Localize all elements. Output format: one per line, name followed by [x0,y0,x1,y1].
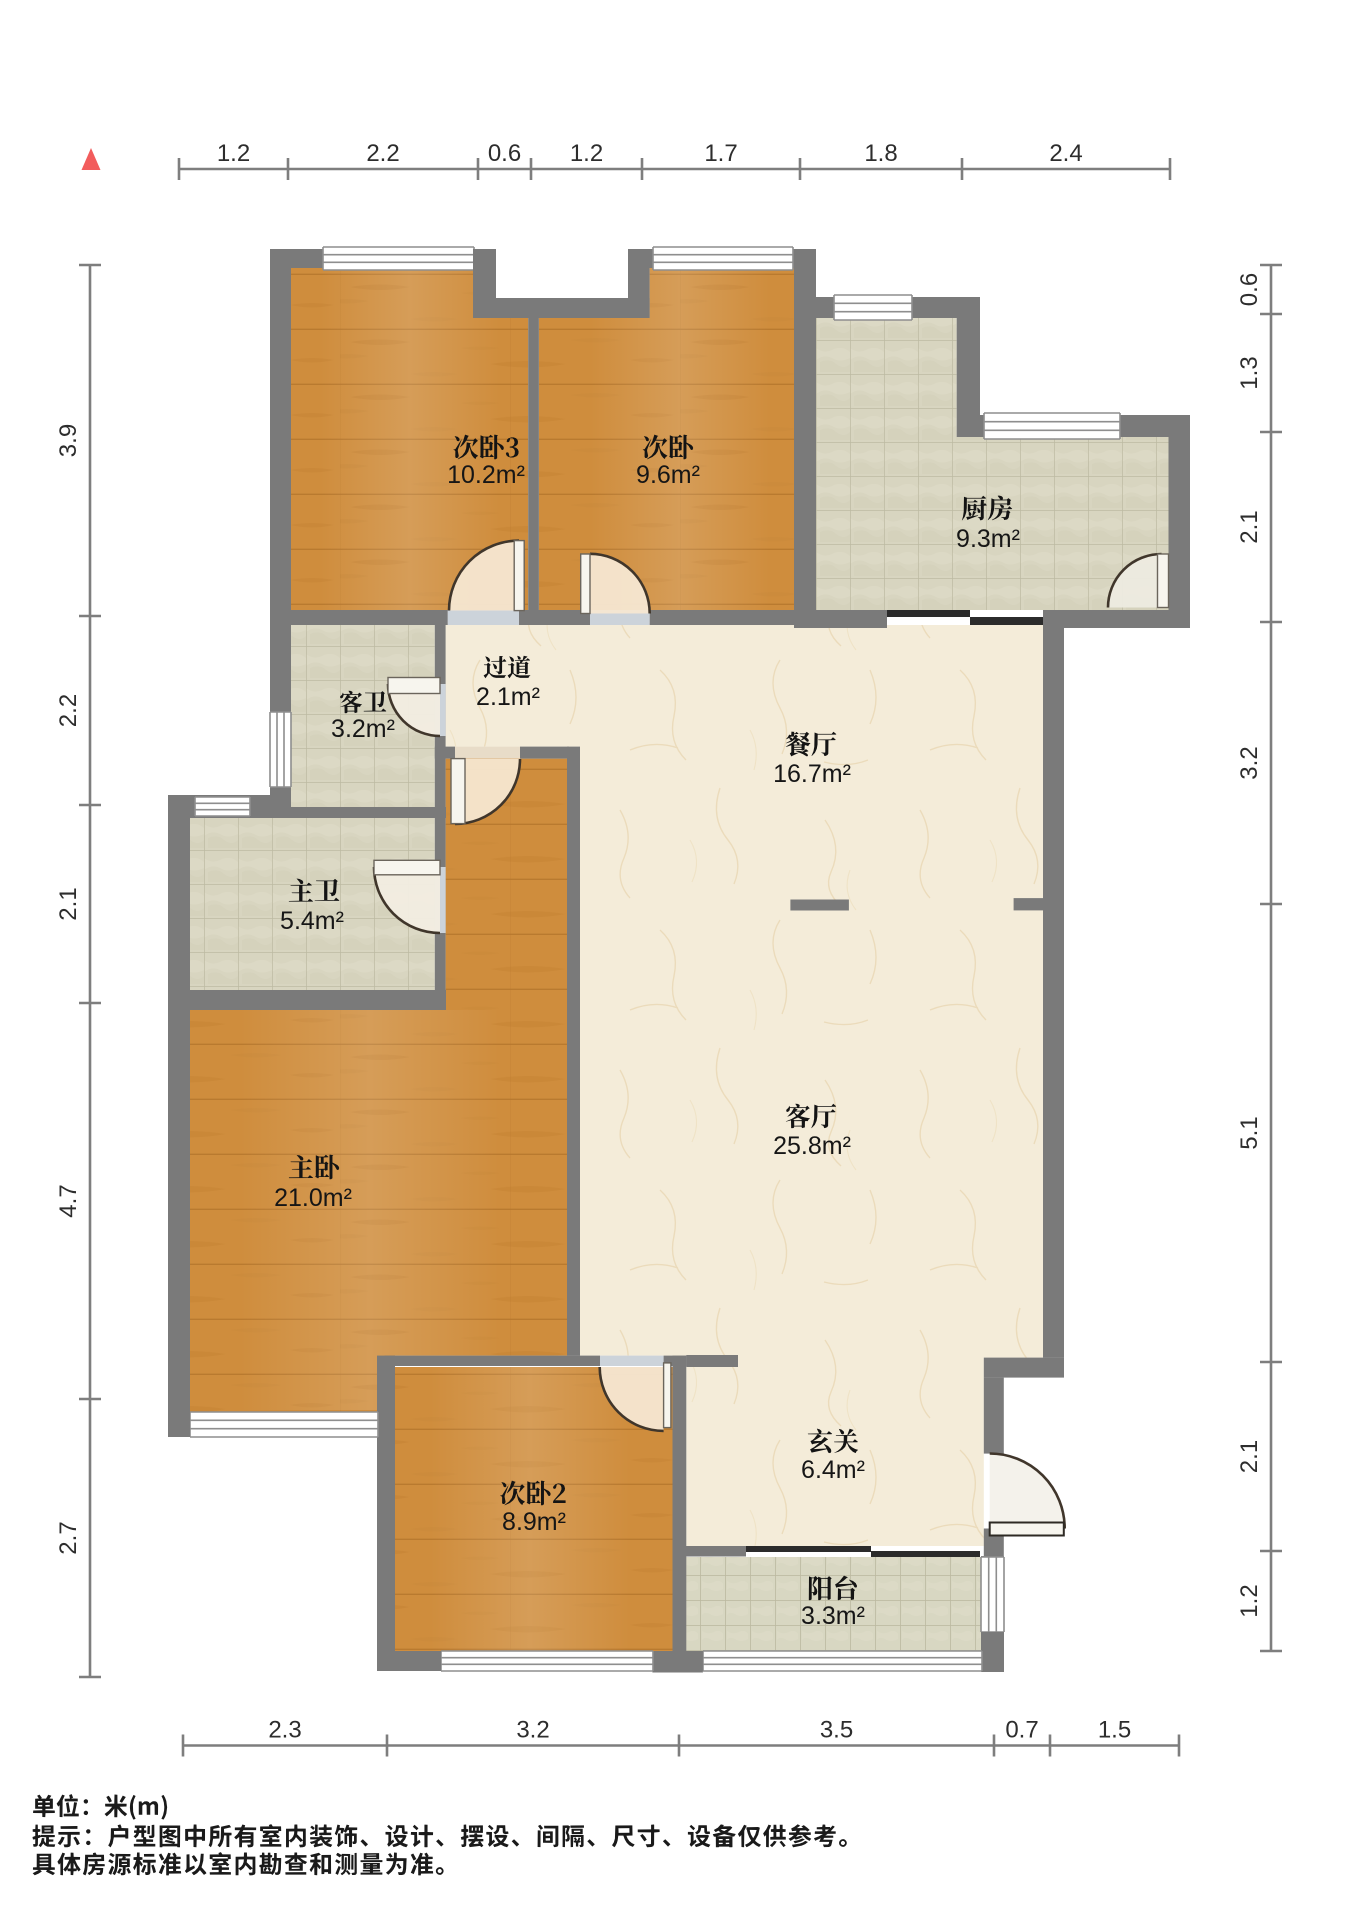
svg-text:10.2m²: 10.2m² [447,461,525,489]
svg-text:3.3m²: 3.3m² [801,1602,865,1630]
svg-text:2.1m²: 2.1m² [476,683,540,711]
svg-text:2.3: 2.3 [268,1717,301,1744]
svg-text:25.8m²: 25.8m² [773,1132,851,1160]
svg-text:2.1: 2.1 [1236,1440,1263,1473]
svg-text:3.2m²: 3.2m² [331,715,395,743]
svg-text:1.8: 1.8 [864,140,897,167]
svg-text:2.7: 2.7 [55,1521,82,1554]
svg-text:1.2: 1.2 [1236,1584,1263,1617]
svg-text:0.6: 0.6 [488,140,521,167]
svg-text:5.1: 5.1 [1236,1116,1263,1149]
svg-text:3.2: 3.2 [1236,746,1263,779]
svg-text:1.2: 1.2 [217,140,250,167]
svg-text:8.9m²: 8.9m² [502,1508,566,1536]
svg-text:16.7m²: 16.7m² [773,760,851,788]
svg-text:3.2: 3.2 [516,1717,549,1744]
svg-text:3.9: 3.9 [55,424,82,457]
svg-text:2.1: 2.1 [1236,510,1263,543]
svg-text:3.5: 3.5 [820,1717,853,1744]
svg-text:4.7: 4.7 [55,1184,82,1217]
svg-text:2.4: 2.4 [1049,140,1082,167]
svg-text:21.0m²: 21.0m² [274,1184,352,1212]
svg-text:2.1: 2.1 [55,887,82,920]
svg-text:2.2: 2.2 [366,140,399,167]
svg-text:9.6m²: 9.6m² [636,461,700,489]
svg-text:9.3m²: 9.3m² [956,525,1020,553]
svg-text:2.2: 2.2 [55,694,82,727]
svg-text:6.4m²: 6.4m² [801,1456,865,1484]
svg-text:1.5: 1.5 [1098,1717,1131,1744]
svg-text:0.6: 0.6 [1236,273,1263,306]
svg-text:1.3: 1.3 [1236,356,1263,389]
svg-text:5.4m²: 5.4m² [280,907,344,935]
svg-text:1.7: 1.7 [704,140,737,167]
svg-text:0.7: 0.7 [1005,1717,1038,1744]
svg-text:1.2: 1.2 [570,140,603,167]
